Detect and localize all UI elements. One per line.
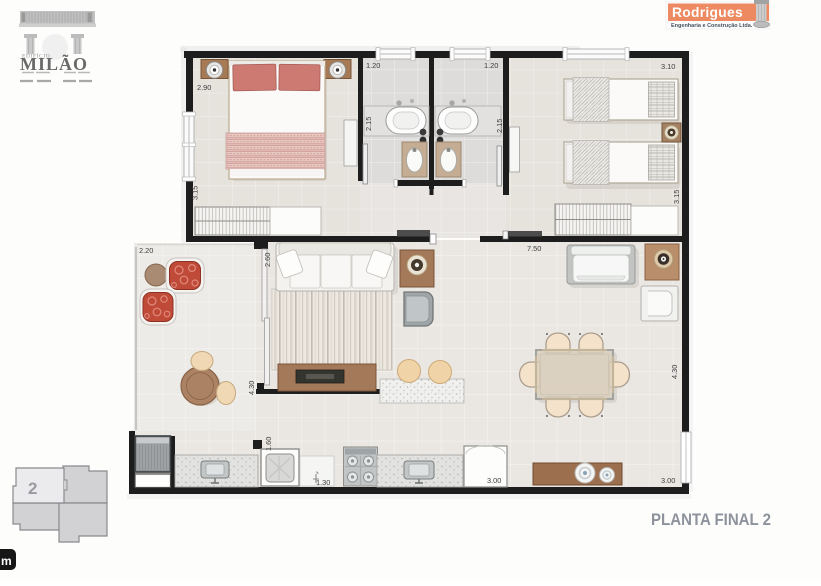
- svg-text:4.30: 4.30: [247, 381, 256, 395]
- svg-text:m: m: [1, 554, 12, 568]
- svg-text:2.60: 2.60: [263, 253, 272, 267]
- svg-text:Engenharia e Construção Ltda.: Engenharia e Construção Ltda.: [671, 23, 753, 29]
- svg-text:1.20: 1.20: [484, 61, 498, 70]
- svg-text:2.90: 2.90: [197, 83, 211, 92]
- svg-text:3.10: 3.10: [661, 62, 675, 71]
- svg-text:1.20: 1.20: [366, 61, 380, 70]
- svg-text:3.00: 3.00: [661, 476, 675, 485]
- svg-text:Rodrigues: Rodrigues: [672, 5, 743, 20]
- svg-text:4.30: 4.30: [670, 365, 679, 379]
- svg-text:3.00: 3.00: [487, 476, 501, 485]
- svg-text:1.30: 1.30: [316, 478, 330, 487]
- svg-text:2.20: 2.20: [139, 246, 153, 255]
- svg-text:2.15: 2.15: [495, 119, 504, 133]
- svg-text:2: 2: [28, 479, 37, 498]
- svg-text:7.50: 7.50: [527, 244, 541, 253]
- svg-text:3.15: 3.15: [672, 190, 681, 204]
- svg-text:MILÃO: MILÃO: [20, 53, 88, 74]
- svg-text:3.15: 3.15: [191, 186, 200, 200]
- svg-text:2.15: 2.15: [364, 117, 373, 131]
- svg-text:1.60: 1.60: [264, 437, 273, 451]
- svg-text:PLANTA FINAL 2: PLANTA FINAL 2: [651, 511, 771, 529]
